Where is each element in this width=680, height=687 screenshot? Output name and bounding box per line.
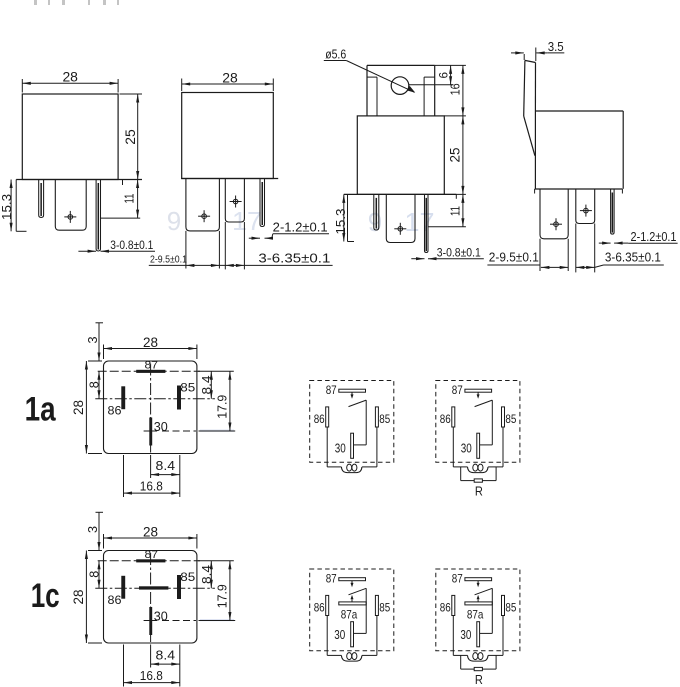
svg-text:28: 28 [62,69,78,85]
svg-text:16: 16 [449,83,463,95]
svg-text:3.5: 3.5 [548,40,564,54]
svg-text:8.4: 8.4 [156,647,176,662]
svg-text:86: 86 [108,593,122,607]
svg-text:11: 11 [122,194,137,204]
svg-text:86: 86 [108,403,122,417]
svg-text:9: 9 [368,207,382,237]
svg-text:3: 3 [86,526,100,533]
svg-text:28: 28 [222,69,238,85]
svg-text:16.8: 16.8 [140,668,163,683]
svg-text:30: 30 [335,441,346,455]
svg-text:87: 87 [452,383,463,397]
svg-text:30: 30 [334,628,345,642]
svg-text:8: 8 [87,571,101,578]
svg-text:87: 87 [145,549,159,561]
svg-text:15.3: 15.3 [0,194,14,220]
svg-text:28: 28 [71,400,86,415]
svg-text:30: 30 [461,441,472,455]
svg-text:86: 86 [440,601,451,615]
svg-text:9: 9 [167,206,181,236]
svg-text:2-1.2±0.1: 2-1.2±0.1 [273,221,328,235]
svg-text:85: 85 [505,412,516,426]
svg-text:3-0.8±0.1: 3-0.8±0.1 [437,245,481,259]
svg-text:85: 85 [180,381,195,395]
svg-text:11: 11 [449,206,463,216]
svg-text:17: 17 [405,207,435,237]
svg-text:28: 28 [71,590,86,605]
svg-text:ø5.6: ø5.6 [325,47,346,61]
svg-text:28: 28 [143,335,158,350]
svg-text:30: 30 [460,628,471,642]
svg-text:8.4: 8.4 [156,458,176,473]
svg-text:85: 85 [180,570,195,584]
svg-text:8.4: 8.4 [200,565,214,584]
svg-text:2-1.2±0.1: 2-1.2±0.1 [631,230,677,244]
svg-text:1a: 1a [25,391,57,429]
svg-text:17: 17 [232,206,262,236]
svg-text:30: 30 [154,610,168,624]
svg-text:87: 87 [326,572,337,586]
svg-text:87a: 87a [341,608,358,622]
svg-text:25: 25 [447,148,462,163]
svg-text:87: 87 [145,359,159,371]
svg-text:R: R [475,484,483,498]
svg-text:17.9: 17.9 [215,584,229,608]
svg-text:6: 6 [436,72,450,79]
svg-text:8.4: 8.4 [200,375,214,394]
svg-text:86: 86 [314,601,325,615]
svg-text:3-0.8±0.1: 3-0.8±0.1 [110,238,153,252]
svg-text:86: 86 [314,412,325,426]
svg-text:8: 8 [87,381,101,388]
svg-text:15.3: 15.3 [334,208,348,234]
svg-text:85: 85 [379,601,390,615]
svg-text:2-9.5±0.1: 2-9.5±0.1 [150,253,187,265]
svg-text:87: 87 [326,383,337,397]
svg-text:2-9.5±0.1: 2-9.5±0.1 [489,250,539,264]
svg-text:28: 28 [143,525,158,540]
svg-text:85: 85 [379,412,390,426]
svg-text:85: 85 [505,601,516,615]
svg-text:30: 30 [154,420,168,434]
svg-text:3: 3 [86,336,100,343]
svg-text:R: R [475,673,483,687]
svg-text:16.8: 16.8 [140,478,163,493]
svg-text:25: 25 [122,129,138,145]
svg-text:3-6.35±0.1: 3-6.35±0.1 [605,250,661,264]
svg-text:86: 86 [440,412,451,426]
svg-text:1c: 1c [31,577,60,615]
svg-text:87: 87 [452,572,463,586]
svg-text:87a: 87a [467,608,484,622]
svg-text:3-6.35±0.1: 3-6.35±0.1 [258,252,330,266]
svg-text:17.9: 17.9 [215,395,229,419]
